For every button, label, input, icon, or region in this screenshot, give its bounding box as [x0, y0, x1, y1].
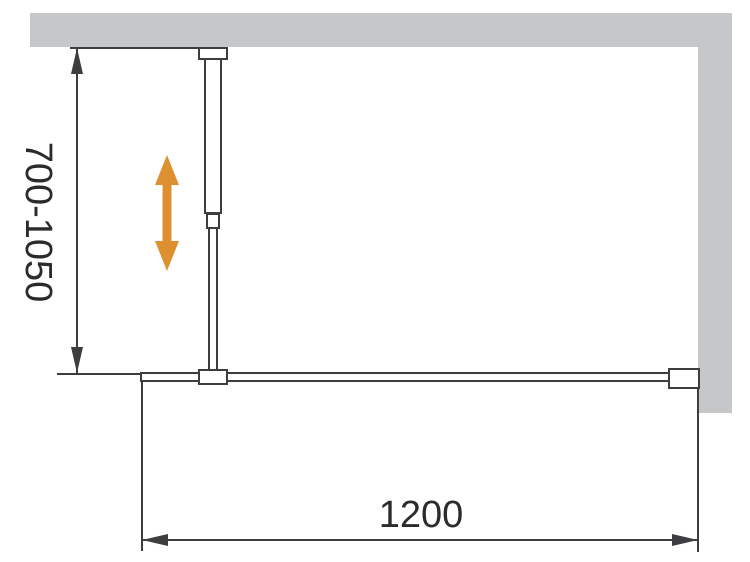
- height-dimension-line: [76, 48, 78, 373]
- wall-right: [698, 47, 732, 413]
- support-bar-glass-clamp: [198, 369, 228, 385]
- width-label: 1200: [379, 496, 464, 534]
- height-adjust-arrow-icon: [154, 155, 180, 271]
- wall-mount-bracket-top: [198, 47, 228, 60]
- drawing-canvas: 700-1050 1200: [0, 0, 750, 562]
- width-extension-line-left: [141, 381, 143, 551]
- wall-top: [30, 13, 732, 47]
- height-extension-line-top: [70, 47, 198, 49]
- height-extension-line-bottom: [57, 373, 140, 375]
- glass-wall-bracket-right: [668, 368, 700, 389]
- width-extension-line-right: [697, 388, 699, 552]
- width-dim-arrow-left-icon: [142, 534, 168, 546]
- height-dim-arrow-down-icon: [71, 347, 83, 373]
- support-bar-adjuster-collar: [206, 213, 220, 229]
- height-range-label: 700-1050: [19, 142, 57, 303]
- width-dim-arrow-right-icon: [672, 534, 698, 546]
- support-bar-lower-rod: [208, 228, 218, 372]
- width-dimension-line: [142, 539, 698, 541]
- support-bar-upper-tube: [204, 59, 222, 214]
- height-dim-arrow-up-icon: [71, 48, 83, 74]
